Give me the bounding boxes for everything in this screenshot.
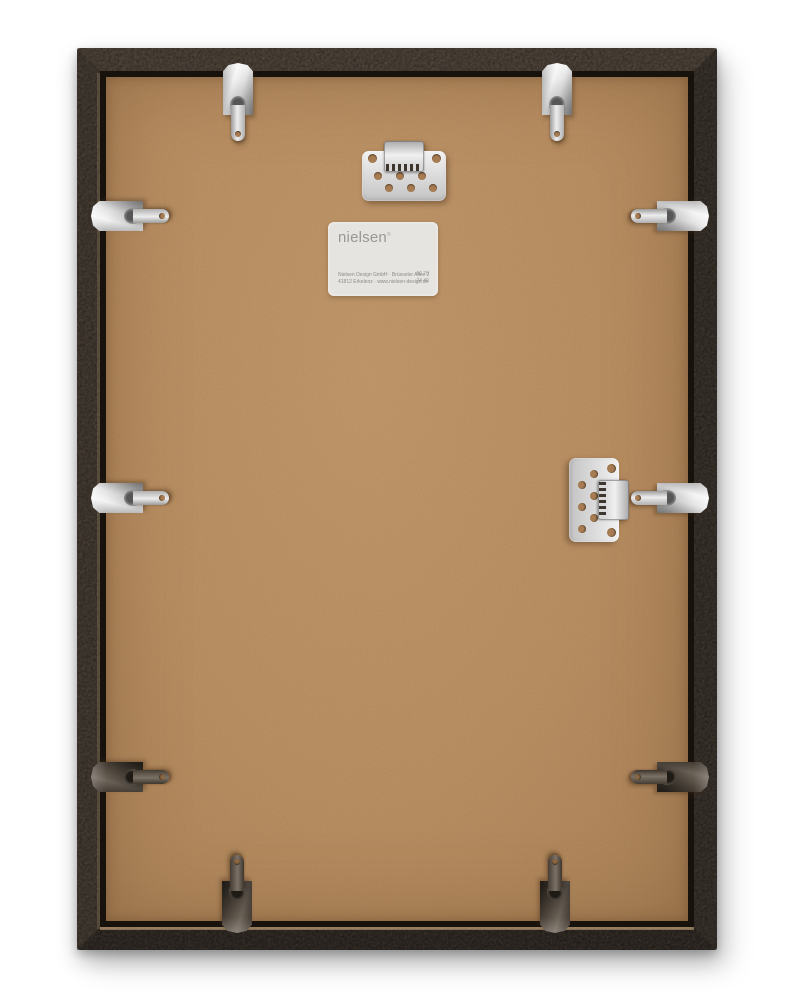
trademark-mark: ® (387, 232, 391, 238)
clip-hole (635, 495, 641, 501)
plate-teeth (386, 164, 422, 171)
clip-stem (631, 209, 667, 223)
label-codes: 50 70 24 40 (416, 271, 429, 287)
hanger-plate-top (362, 141, 446, 201)
plate-grid-hole (407, 184, 415, 192)
label-code-line1: 50 70 (416, 271, 429, 279)
spring-clip-left-middle (91, 480, 171, 516)
clip-hole (635, 213, 641, 219)
spring-clip-bottom-left (219, 853, 255, 933)
photo-frame-back: nielsen® Nielsen Design GmbH · Brüsseler… (0, 0, 800, 1000)
spring-clip-right-upper (629, 198, 709, 234)
plate-grid-hole (429, 184, 437, 192)
clip-hole (554, 131, 560, 137)
clip-stem (631, 491, 667, 505)
plate-grid-hole (374, 172, 382, 180)
clip-hole (159, 495, 165, 501)
plate-screw-hole (607, 464, 616, 473)
plate-grid-hole (578, 525, 586, 533)
clip-stem (133, 491, 169, 505)
plate-grid-hole (418, 172, 426, 180)
plate-grid-hole (578, 503, 586, 511)
clip-stem (550, 105, 564, 141)
spring-clip-left-upper (91, 198, 171, 234)
clip-hole (159, 774, 165, 780)
plate-screw-hole (432, 154, 441, 163)
clip-hole (235, 131, 241, 137)
clip-stem (230, 855, 244, 891)
plate-grid-hole (590, 470, 598, 478)
clip-stem (231, 105, 245, 141)
plate-grid-hole (385, 184, 393, 192)
plate-screw-hole (607, 528, 616, 537)
hanger-plate-right (569, 458, 629, 542)
plate-grid-hole (590, 492, 598, 500)
clip-hole (635, 774, 641, 780)
brand-label: nielsen® Nielsen Design GmbH · Brüsseler… (328, 222, 438, 296)
brand-logo: nielsen® (338, 230, 428, 245)
label-code-line2: 24 40 (416, 278, 429, 286)
spring-clip-left-lower (91, 759, 171, 795)
clip-hole (552, 859, 558, 865)
clip-hole (159, 213, 165, 219)
plate-teeth (599, 482, 606, 518)
spring-clip-bottom-right (537, 853, 573, 933)
clip-hole (234, 859, 240, 865)
spring-clip-top-left (220, 63, 256, 143)
plate-grid-hole (578, 481, 586, 489)
clip-stem (548, 855, 562, 891)
spring-clip-top-right (539, 63, 575, 143)
spring-clip-right-middle (629, 480, 709, 516)
spring-clip-right-lower (629, 759, 709, 795)
plate-grid-hole (590, 514, 598, 522)
clip-stem (631, 770, 667, 784)
clip-stem (133, 770, 169, 784)
plate-screw-hole (368, 154, 377, 163)
clip-stem (133, 209, 169, 223)
plate-grid-hole (396, 172, 404, 180)
